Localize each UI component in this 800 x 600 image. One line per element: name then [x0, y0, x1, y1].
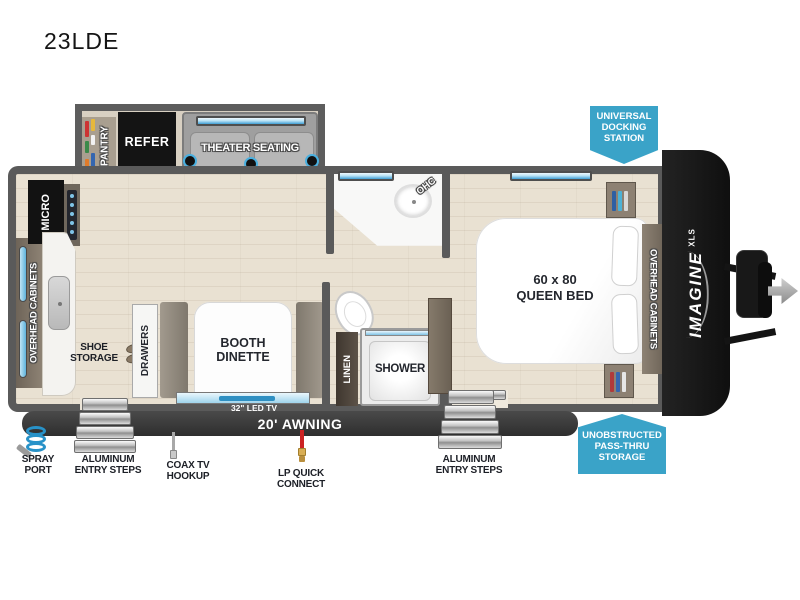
nightstand-item: [612, 191, 616, 211]
hitch-frame-bar: [724, 328, 776, 345]
burner-knob: [70, 194, 74, 198]
logo-imagine: IMAGINE: [686, 251, 709, 338]
drawers-cabinet: DRAWERS: [132, 304, 158, 398]
burner-knob: [70, 212, 74, 216]
lp-connect-icon: [298, 430, 306, 462]
logo-xls: XLS: [688, 228, 697, 247]
wardrobe: [428, 298, 452, 394]
bath-wall: [326, 172, 334, 254]
burner-knob: [70, 221, 74, 225]
theater-window: [196, 116, 306, 126]
nightstand-item: [622, 372, 626, 392]
nightstand-item: [624, 191, 628, 211]
refrigerator: REFER: [118, 112, 176, 172]
bed-type-label: QUEEN BED: [500, 288, 610, 304]
entry-steps-left-label: ALUMINUM ENTRY STEPS: [70, 454, 146, 476]
overhead-cabinets-right-label: OVERHEAD CABINETS: [642, 224, 664, 374]
bath-window: [338, 171, 394, 181]
spray-port-label: SPRAY PORT: [12, 454, 64, 476]
bed-size-label: 60 x 80: [500, 272, 610, 288]
shower-label: SHOWER: [362, 362, 438, 376]
micro-label: MICRO: [40, 194, 52, 231]
kitchen-sink: [48, 276, 70, 330]
coax-hookup-icon: [170, 432, 178, 460]
dinette-bench: [296, 302, 324, 398]
toilet-bowl: [340, 297, 371, 331]
refer-label: REFER: [125, 135, 170, 149]
nightstand-item: [618, 191, 622, 211]
dinette-label-line1: BOOTH: [216, 336, 269, 350]
entry-steps-left: [74, 398, 138, 458]
lp-connect-label: LP QUICK CONNECT: [265, 468, 337, 490]
entry-steps-right-label: ALUMINUM ENTRY STEPS: [430, 454, 508, 476]
overhead-cabinets-right: OVERHEAD CABINETS: [642, 224, 664, 374]
sink-drain: [58, 302, 62, 306]
nightstand-item: [616, 372, 620, 392]
pantry-item: [85, 141, 89, 153]
dinette-bench: [160, 302, 188, 398]
nightstand: [606, 182, 636, 218]
hitch-coupler: [768, 278, 798, 304]
queen-bed: 60 x 80 QUEEN BED: [476, 218, 648, 364]
dinette-table: BOOTH DINETTE: [194, 302, 292, 398]
pass-thru-storage-badge: UNOBSTRUCTED PASS-THRU STORAGE: [578, 414, 666, 474]
bath-wall: [322, 282, 330, 408]
drawers-label: DRAWERS: [140, 325, 151, 376]
entry-steps-right: [438, 390, 504, 454]
docking-station-badge: UNIVERSAL DOCKING STATION: [590, 106, 658, 164]
overhead-cabinets-left-label: OVERHEAD CABINETS: [26, 238, 42, 388]
bath-wall: [442, 172, 450, 258]
pillow: [611, 294, 639, 355]
linen-label: LINEN: [342, 355, 353, 384]
front-cap: IMAGINE XLS: [662, 150, 730, 416]
floorplan-canvas: 23LDE PANTRY REFER THEATER SEATING: [0, 0, 800, 600]
pantry-item: [85, 121, 89, 137]
burner-knob: [70, 203, 74, 207]
coax-label: COAX TV HOOKUP: [156, 460, 220, 482]
tv-screen: [219, 396, 275, 401]
shower-glass: [365, 330, 435, 336]
linen-closet: LINEN: [336, 332, 358, 406]
nightstand-item: [610, 372, 614, 392]
overhead-cabinets-left: OVERHEAD CABINETS: [16, 238, 42, 388]
dinette-label-line2: DINETTE: [216, 350, 269, 364]
theater-seating-label: THEATER SEATING: [184, 140, 316, 156]
page-title: 23LDE: [44, 28, 119, 55]
nightstand: [604, 364, 634, 398]
bedroom-window: [510, 171, 592, 181]
shoe-storage-label: SHOE STORAGE: [64, 342, 124, 364]
pillow: [611, 226, 639, 287]
burner-knob: [70, 230, 74, 234]
